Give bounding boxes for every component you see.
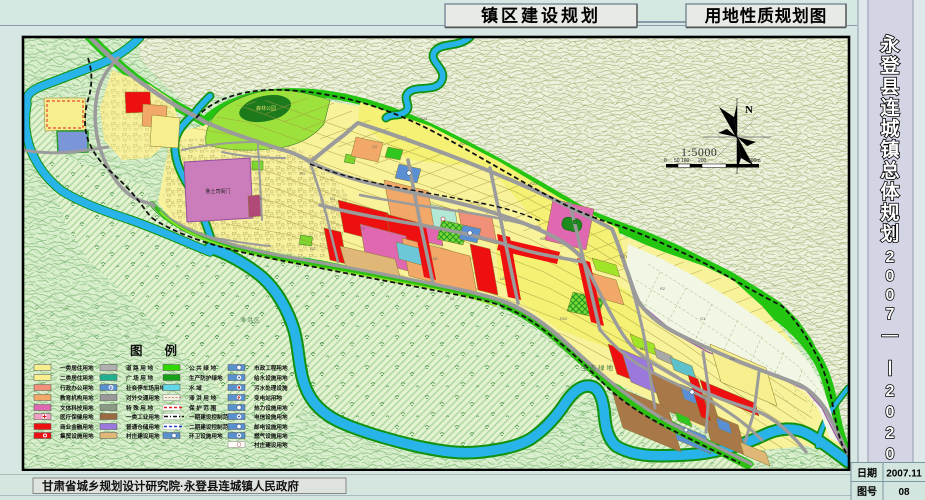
svg-text:特 殊 用 地: 特 殊 用 地 <box>126 404 153 412</box>
svg-text:R1: R1 <box>330 196 336 201</box>
svg-text:市政工程用地: 市政工程用地 <box>254 364 288 372</box>
svg-text:R21: R21 <box>420 116 428 121</box>
svg-text:给水设施用地: 给水设施用地 <box>254 374 288 382</box>
svg-text:08: 08 <box>898 487 910 498</box>
svg-text:一类居住用地: 一类居住用地 <box>60 364 94 372</box>
svg-text:环卫设施用地: 环卫设施用地 <box>189 432 223 440</box>
svg-text:登: 登 <box>879 54 900 77</box>
svg-text:7: 7 <box>886 306 895 323</box>
svg-text:邮电设施用地: 邮电设施用地 <box>254 423 288 431</box>
svg-text:0: 0 <box>886 268 895 285</box>
svg-text:镇: 镇 <box>880 138 899 161</box>
svg-text:0: 0 <box>886 287 895 304</box>
svg-text:生态绿地: 生态绿地 <box>581 363 615 372</box>
svg-text:400m: 400m <box>748 158 761 164</box>
svg-text:规: 规 <box>880 201 899 224</box>
svg-text:道 路 用 地: 道 路 用 地 <box>126 364 153 372</box>
svg-text:M1: M1 <box>700 396 706 401</box>
svg-text:二期建设控制范围: 二期建设控制范围 <box>189 423 234 431</box>
svg-text:行政办公用地: 行政办公用地 <box>59 384 94 392</box>
svg-text:连: 连 <box>880 96 900 119</box>
svg-text:滞 洪 用 地: 滞 洪 用 地 <box>189 394 216 402</box>
svg-text:公 共 绿 地: 公 共 绿 地 <box>189 364 216 372</box>
svg-text:C2: C2 <box>360 226 366 231</box>
svg-text:50 100: 50 100 <box>674 158 690 164</box>
svg-text:0: 0 <box>886 446 895 463</box>
svg-text:总: 总 <box>880 159 899 182</box>
svg-text:森林公园: 森林公园 <box>256 105 276 112</box>
svg-text:一期建设控制范围: 一期建设控制范围 <box>189 413 234 421</box>
svg-text:200: 200 <box>698 158 707 164</box>
svg-text:|: | <box>888 359 892 376</box>
svg-text:电信设施用地: 电信设施用地 <box>254 413 288 421</box>
svg-text:W1: W1 <box>660 416 667 421</box>
svg-text:R2: R2 <box>730 356 736 361</box>
svg-text:R22: R22 <box>530 181 538 186</box>
svg-text:R1: R1 <box>260 196 266 201</box>
svg-text:R22: R22 <box>560 316 568 321</box>
svg-text:滞 洪 区: 滞 洪 区 <box>240 316 260 324</box>
svg-text:生产防护绿地: 生产防护绿地 <box>189 374 223 382</box>
svg-text:保 护 范 围: 保 护 范 围 <box>188 404 216 412</box>
svg-text:社会停车场用地: 社会停车场用地 <box>125 384 166 392</box>
svg-text:村庄建设用地: 村庄建设用地 <box>254 441 288 449</box>
svg-text:U2: U2 <box>500 276 506 281</box>
svg-text:N: N <box>745 104 753 116</box>
svg-text:1:5000: 1:5000 <box>681 145 717 159</box>
svg-text:M1: M1 <box>640 346 646 351</box>
svg-text:县: 县 <box>880 76 899 98</box>
svg-text:对外交通用地: 对外交通用地 <box>126 394 160 402</box>
svg-text:文体科技用地: 文体科技用地 <box>60 404 94 412</box>
svg-text:划: 划 <box>880 222 899 245</box>
svg-text:商业金融用地: 商业金融用地 <box>60 423 94 431</box>
svg-text:C2: C2 <box>540 236 546 241</box>
svg-text:R1: R1 <box>300 171 306 176</box>
svg-text:图号: 图号 <box>857 486 877 498</box>
svg-text:燃气设施用地: 燃气设施用地 <box>254 432 288 440</box>
svg-text:0: 0 <box>886 404 895 421</box>
svg-text:2: 2 <box>886 383 895 400</box>
svg-text:水 域: 水 域 <box>188 384 202 392</box>
svg-text:R21: R21 <box>460 141 468 146</box>
svg-text:S1: S1 <box>450 296 456 301</box>
svg-text:G1: G1 <box>700 316 706 321</box>
svg-text:污水处理设施: 污水处理设施 <box>254 384 288 392</box>
svg-text:鲁土司衙门: 鲁土司衙门 <box>205 188 230 195</box>
svg-text:变电站用地: 变电站用地 <box>254 394 282 402</box>
svg-text:镇区建设规划: 镇区建设规划 <box>481 6 601 26</box>
svg-text:用地性质规划图: 用地性质规划图 <box>705 6 828 26</box>
svg-text:教育机构用地: 教育机构用地 <box>59 394 94 402</box>
svg-text:—: — <box>882 327 898 344</box>
svg-text:2007.11: 2007.11 <box>886 469 922 480</box>
svg-text:R2: R2 <box>310 246 316 251</box>
svg-text:2: 2 <box>886 249 895 266</box>
svg-text:一类工业用地: 一类工业用地 <box>126 413 160 421</box>
svg-text:日期: 日期 <box>857 467 877 480</box>
svg-text:甘肃省城乡规划设计研究院·永登县连城镇人民政府: 甘肃省城乡规划设计研究院·永登县连城镇人民政府 <box>42 479 299 493</box>
svg-text:热力设施用地: 热力设施用地 <box>254 404 288 412</box>
svg-text:R21: R21 <box>620 254 628 259</box>
svg-text:医疗保健用地: 医疗保健用地 <box>60 413 94 421</box>
svg-text:永: 永 <box>879 33 900 56</box>
svg-text:二类居住用地: 二类居住用地 <box>60 374 94 382</box>
svg-text:普通仓储用地: 普通仓储用地 <box>126 423 160 431</box>
svg-text:城: 城 <box>880 117 899 140</box>
svg-text:C25: C25 <box>430 256 438 261</box>
svg-text:集贸设施用地: 集贸设施用地 <box>59 432 94 440</box>
svg-text:P: P <box>109 386 112 391</box>
svg-text:C2: C2 <box>372 144 378 149</box>
svg-text:图例: 图例 <box>130 343 199 358</box>
svg-text:村庄建设用地: 村庄建设用地 <box>126 432 160 440</box>
svg-text:2: 2 <box>886 425 895 442</box>
svg-text:0: 0 <box>664 158 667 164</box>
svg-text:R2: R2 <box>660 286 666 291</box>
svg-text:体: 体 <box>880 180 900 203</box>
svg-text:广 场 用 地: 广 场 用 地 <box>126 374 153 382</box>
